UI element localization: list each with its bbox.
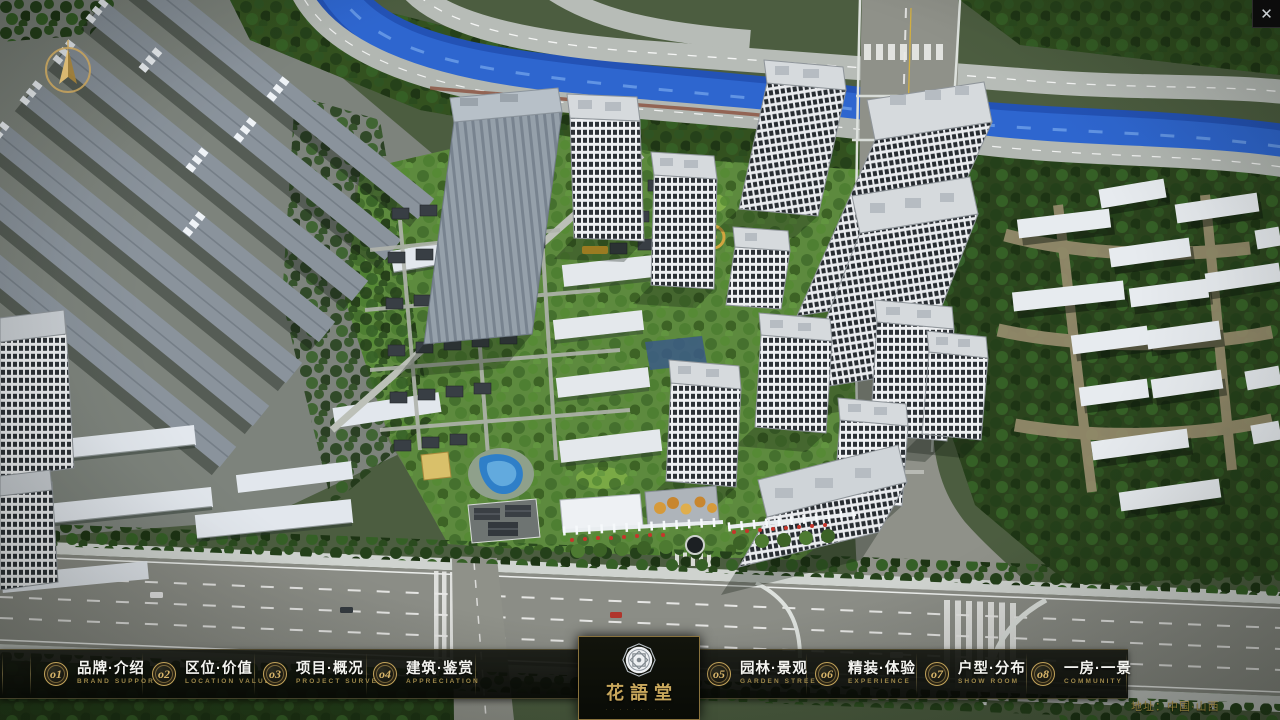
nav-item-label: 精装·体验 xyxy=(848,662,916,677)
nav-item-subtitle: GARDEN STREET xyxy=(740,679,823,686)
masterplan-render[interactable] xyxy=(0,0,1280,720)
nav-item-project[interactable]: o3 项目·概况 PROJECT SURVEY xyxy=(263,650,385,698)
compass-icon xyxy=(38,36,98,100)
nav-item-label: 建筑·鉴赏 xyxy=(406,662,480,677)
nav-item-subtitle: LOCATION VALUE xyxy=(185,679,271,686)
nav-item-garden[interactable]: o5 园林·景观 GARDEN STREET xyxy=(707,650,823,698)
logo-title: 花語堂 xyxy=(600,679,678,705)
address-text: 地址：中国·山西 xyxy=(1131,698,1220,714)
brand-emblem-icon xyxy=(621,642,657,678)
nav-item-number-badge: o2 xyxy=(152,662,176,686)
nav-divider xyxy=(1026,653,1027,695)
nav-item-location[interactable]: o2 区位·价值 LOCATION VALUE xyxy=(152,650,271,698)
nav-item-subtitle: EXPERIENCE xyxy=(848,679,916,686)
nav-divider xyxy=(916,653,917,695)
nav-item-label: 户型·分布 xyxy=(958,662,1026,677)
vignette-overlay xyxy=(0,0,1280,720)
nav-item-brand[interactable]: o1 品牌·介绍 BRAND SUPPORT xyxy=(44,650,161,698)
nav-item-number-badge: o4 xyxy=(373,662,397,686)
nav-item-label: 园林·景观 xyxy=(740,662,823,677)
nav-bar-left: o1 品牌·介绍 BRAND SUPPORT o2 区位·价值 LOCATION… xyxy=(0,649,578,699)
nav-divider xyxy=(2,653,3,695)
nav-item-floorplan[interactable]: o7 户型·分布 SHOW ROOM xyxy=(925,650,1026,698)
nav-item-subtitle: BRAND SUPPORT xyxy=(77,679,161,686)
logo-subtitle: · · · · · · · · · · xyxy=(605,707,672,713)
nav-item-number-badge: o5 xyxy=(707,662,731,686)
nav-item-number-badge: o7 xyxy=(925,662,949,686)
nav-item-architecture[interactable]: o4 建筑·鉴赏 APPRECIATION xyxy=(373,650,480,698)
nav-item-subtitle: SHOW ROOM xyxy=(958,679,1026,686)
presentation-window: ✕ o1 品牌·介绍 BRAND SUPPORT o2 区位·价值 LOCATI… xyxy=(0,0,1280,720)
nav-item-label: 品牌·介绍 xyxy=(77,662,161,677)
nav-item-subtitle: PROJECT SURVEY xyxy=(296,679,385,686)
logo-panel[interactable]: 花語堂 · · · · · · · · · · xyxy=(578,636,700,720)
nav-item-subtitle: APPRECIATION xyxy=(406,679,480,686)
nav-item-label: 一房·一景 xyxy=(1064,662,1132,677)
nav-item-subtitle: COMMUNITY xyxy=(1064,679,1132,686)
nav-divider xyxy=(30,653,31,695)
nav-item-number-badge: o8 xyxy=(1031,662,1055,686)
nav-bar-right: o5 园林·景观 GARDEN STREET o6 精装·体验 EXPERIEN… xyxy=(693,649,1128,699)
nav-item-number-badge: o1 xyxy=(44,662,68,686)
nav-item-views[interactable]: o8 一房·一景 COMMUNITY xyxy=(1031,650,1132,698)
nav-item-number-badge: o6 xyxy=(815,662,839,686)
nav-item-number-badge: o3 xyxy=(263,662,287,686)
nav-item-interior[interactable]: o6 精装·体验 EXPERIENCE xyxy=(815,650,916,698)
nav-item-label: 项目·概况 xyxy=(296,662,385,677)
close-button[interactable]: ✕ xyxy=(1252,0,1280,28)
nav-item-label: 区位·价值 xyxy=(185,662,271,677)
